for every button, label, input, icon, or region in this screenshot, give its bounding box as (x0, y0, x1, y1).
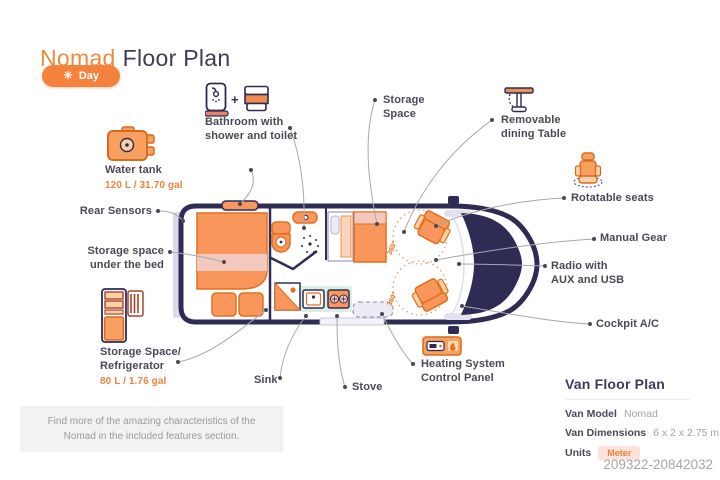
toilet-icon (243, 85, 271, 113)
under-bed-storage-left (212, 293, 236, 316)
door-step (320, 318, 384, 325)
callout-storage-refrigerator: Storage Space/ Refrigerator 80 L / 1.76 … (100, 346, 204, 388)
callout-rotatable-seats: Rotatable seats (571, 192, 654, 206)
toilet-drain (280, 241, 283, 244)
units-label: Units (565, 447, 591, 459)
van-mirror-bottom (448, 326, 459, 334)
footer-note-box: Find more of the amazing characteristics… (20, 406, 283, 452)
water-tank-capacity: 120 L / 31.70 gal (105, 180, 183, 193)
shower-icon (205, 82, 231, 118)
van-info-title: Van Floor Plan (565, 376, 705, 392)
callout-bathroom: Bathroom with shower and toilet (205, 116, 301, 144)
van-info-panel: Van Floor Plan Van Model Nomad Van Dimen… (565, 376, 705, 467)
refrigerator-icon (100, 287, 144, 347)
van-model-value: Nomad (624, 408, 658, 420)
bed (197, 213, 267, 289)
plus-icon: + (231, 92, 239, 108)
water-tank-icon (106, 126, 156, 164)
callout-dining-table: Removable dining Table (501, 114, 581, 142)
heating-panel-icon (422, 336, 462, 356)
van-dimensions-value: 6 x 2 x 2.75 m (653, 427, 719, 439)
callout-manual-gear: Manual Gear (600, 232, 667, 246)
callout-water-tank: Water tank 120 L / 31.70 gal (105, 164, 183, 192)
water-tank-label: Water tank (105, 164, 183, 178)
rotatable-seat-icon (571, 151, 605, 189)
page: NomadFloor Plan ☀ Day (0, 0, 720, 480)
toilet-tank (272, 222, 290, 234)
refrigerator-capacity: 80 L / 1.76 gal (100, 376, 204, 389)
info-row-dimensions: Van Dimensions 6 x 2 x 2.75 m (565, 427, 705, 439)
callout-stove: Stove (352, 381, 382, 395)
wardrobe-shelf (331, 216, 339, 234)
dining-table-icon (503, 84, 535, 114)
callout-storage-space: Storage Space (383, 94, 438, 122)
info-divider (565, 399, 690, 400)
callout-radio: Radio with AUX and USB (551, 260, 631, 288)
bed-pillow-band (197, 254, 267, 271)
wardrobe-cabinet (341, 216, 351, 257)
under-bed-storage-right (239, 293, 263, 316)
van-dimensions-label: Van Dimensions (565, 427, 646, 439)
kitchen-faucet (312, 295, 315, 298)
van-mirror-top (448, 196, 459, 204)
callout-cockpit-ac: Cockpit A/C (596, 318, 659, 332)
van-model-label: Van Model (565, 408, 617, 420)
kitchen-sink-basin (307, 293, 321, 305)
callout-sink: Sink (254, 374, 278, 388)
callout-rear-sensors: Rear Sensors (68, 205, 152, 219)
callout-heating: Heating System Control Panel (421, 358, 509, 386)
info-row-model: Van Model Nomad (565, 408, 705, 420)
callout-storage-under-bed: Storage space under the bed (72, 245, 164, 273)
footer-note-text: Find more of the amazing characteristics… (39, 414, 264, 445)
storage-space-box-top (354, 212, 386, 224)
storage-refrigerator-label: Storage Space/ Refrigerator (100, 346, 204, 374)
vent-fan (290, 287, 295, 292)
watermark-code: 209322-20842032 (603, 457, 713, 472)
